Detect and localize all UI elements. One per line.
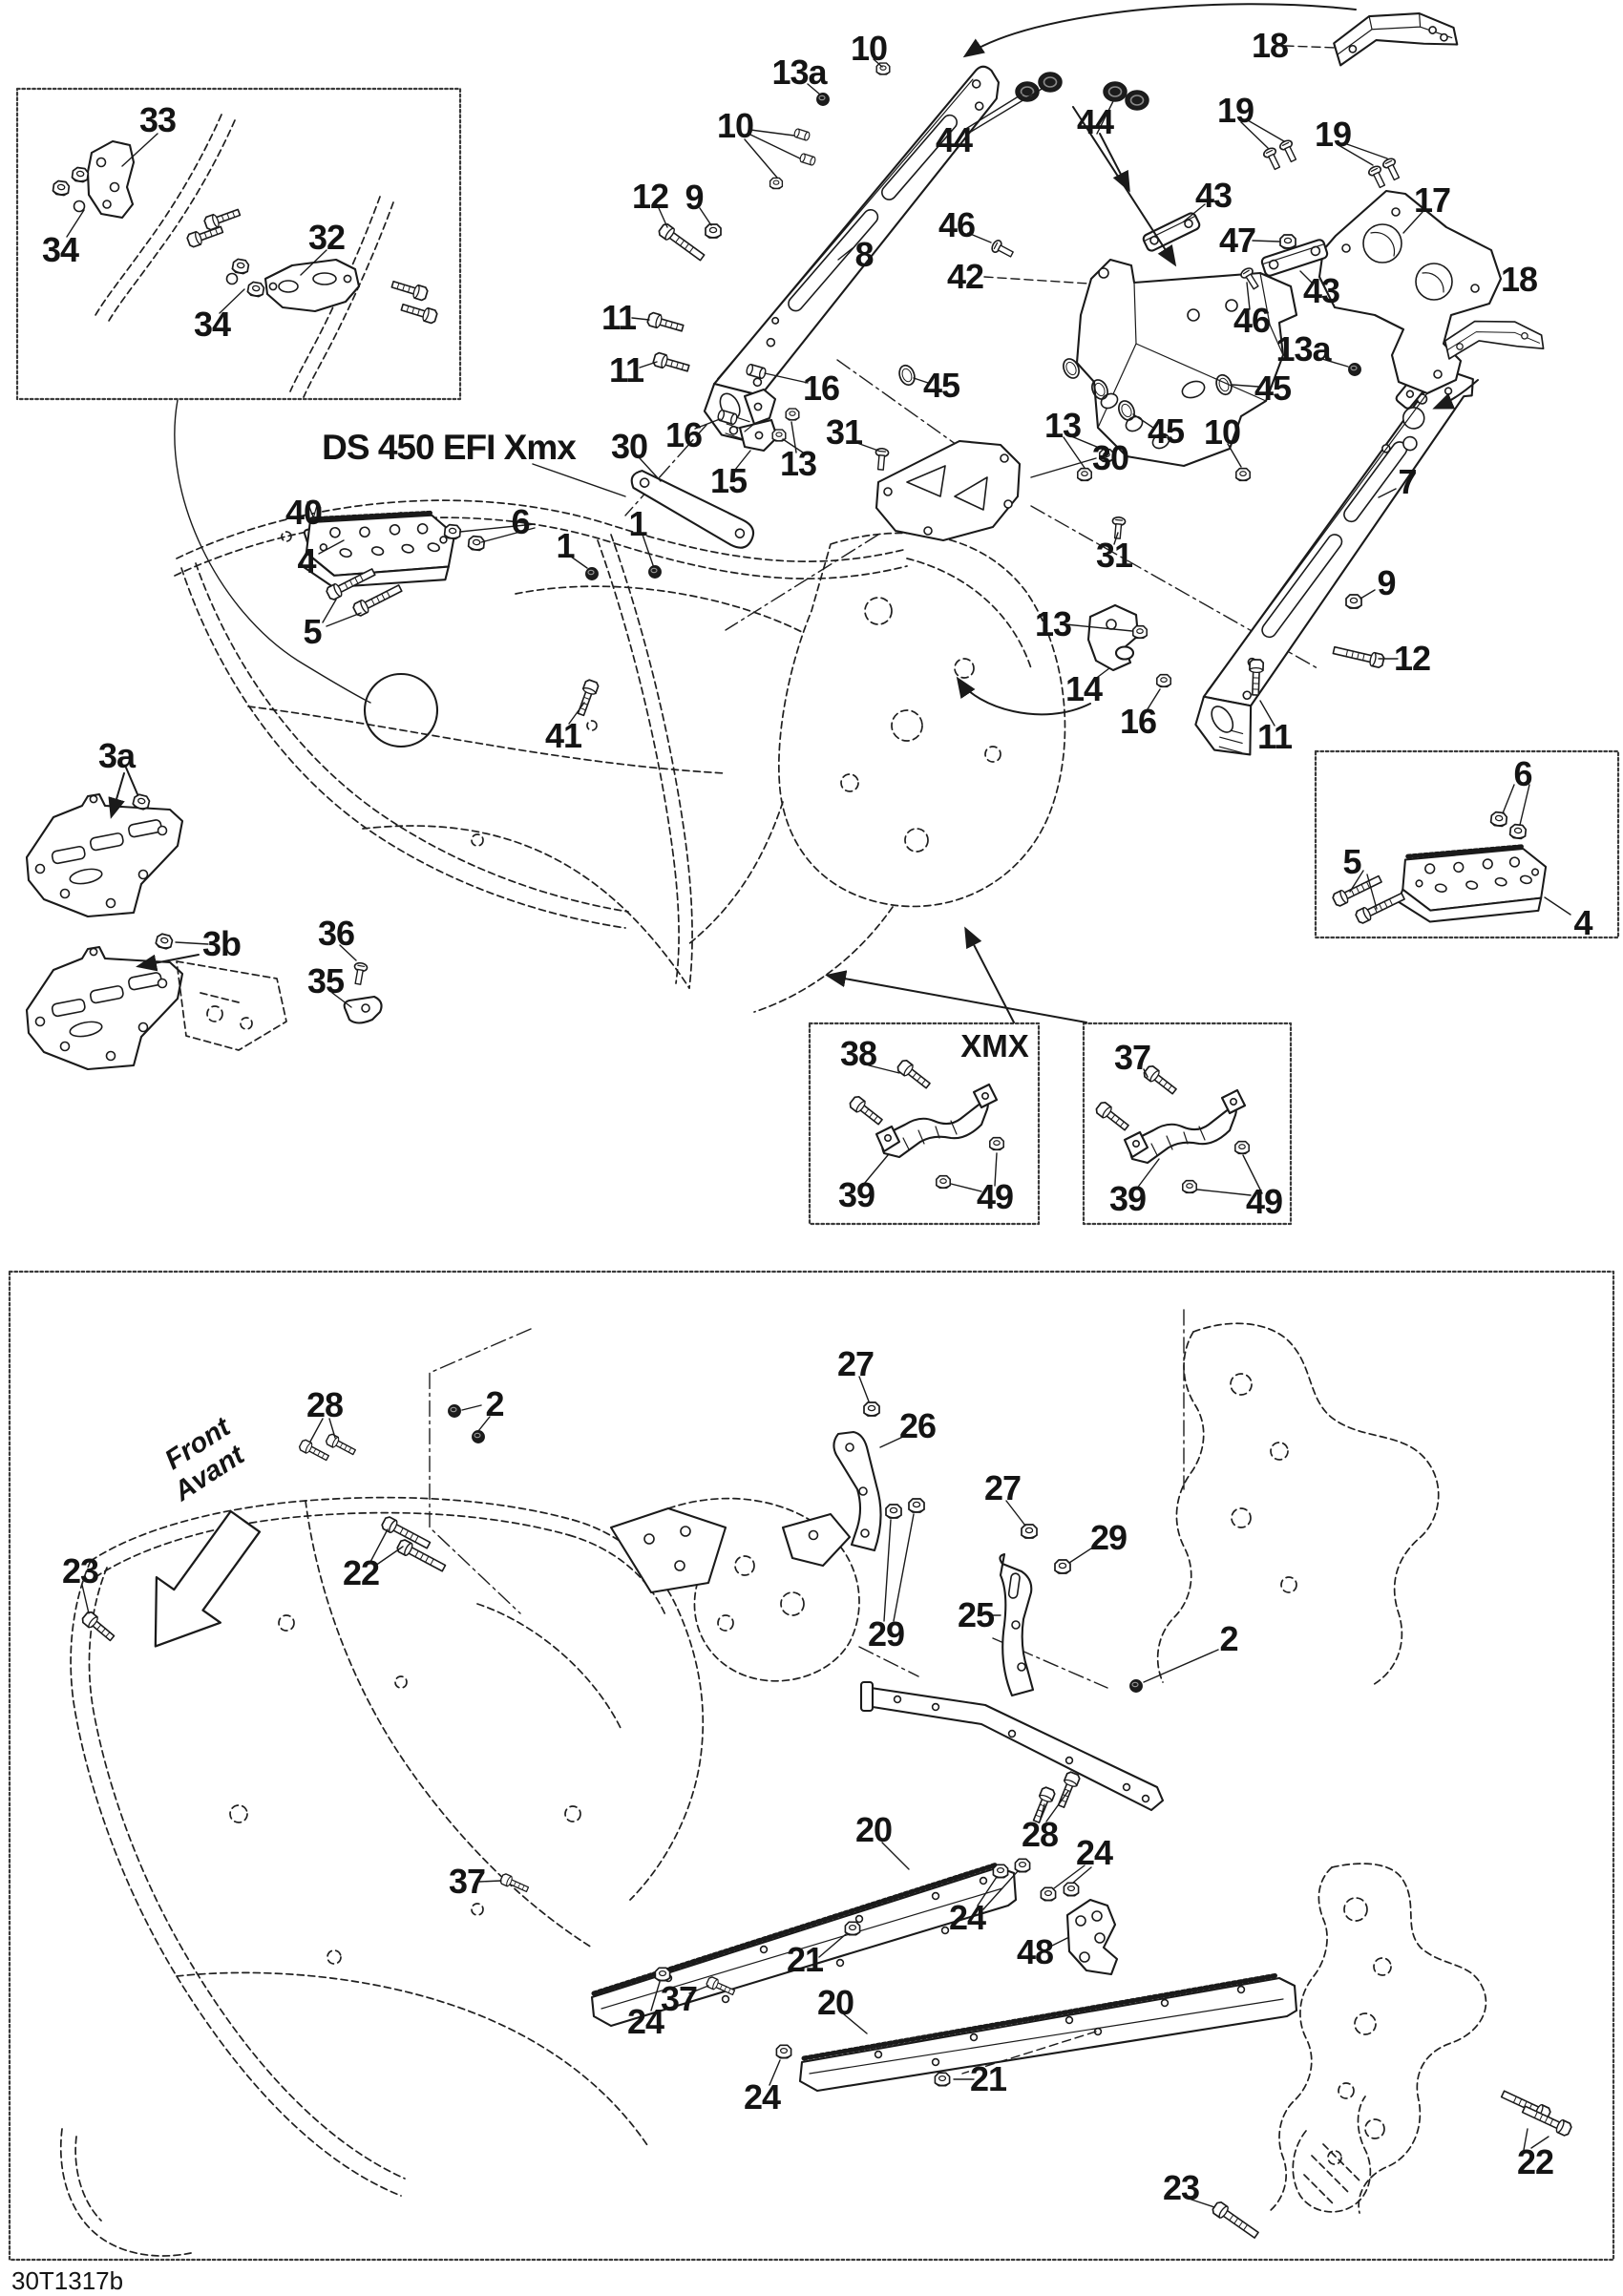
callout-24-85: 24 [627, 2002, 664, 2041]
drawing-number: 30T1317b [11, 2266, 123, 2295]
callout-18-4: 18 [1252, 26, 1288, 65]
callout-45-26: 45 [923, 366, 960, 405]
callout-9-41: 9 [1377, 563, 1395, 602]
part-17-support-plate [1319, 191, 1501, 393]
callout-10-34: 10 [717, 106, 753, 145]
part-30-plate [876, 441, 1020, 540]
xmx-inset-label: XMX [960, 1028, 1029, 1064]
callout-35-53: 35 [307, 961, 345, 1001]
callout-21-81: 21 [787, 1940, 824, 1979]
callout-5-58: 5 [1342, 842, 1361, 881]
callout-6-57: 6 [1513, 754, 1531, 793]
callout-12-11: 12 [632, 177, 668, 216]
callout-14-44: 14 [1065, 669, 1103, 708]
callout-22-90: 22 [1517, 2142, 1553, 2181]
callout-22-75: 22 [343, 1553, 379, 1592]
callout-10-5: 10 [851, 29, 887, 68]
inset-box-brackets [17, 89, 460, 399]
callout-27-66: 27 [837, 1344, 874, 1383]
callout-42-15: 42 [947, 257, 983, 296]
callout-33-0: 33 [139, 100, 176, 139]
callout-47-16: 47 [1219, 221, 1255, 260]
callout-38-60: 38 [840, 1034, 876, 1073]
callout-39-64: 39 [1109, 1179, 1146, 1218]
callout-24-83: 24 [1076, 1833, 1113, 1872]
callout-21-88: 21 [970, 2059, 1007, 2098]
callout-20-86: 20 [817, 1983, 854, 2022]
callout-18-24: 18 [1501, 260, 1537, 299]
callout-32-2: 32 [308, 218, 345, 257]
callout-30-36: 30 [1092, 438, 1128, 477]
part-14-bracket [1088, 605, 1138, 670]
callout-8-20: 8 [854, 235, 873, 274]
callout-23-74: 23 [62, 1551, 98, 1590]
callout-13a-23: 13a [1275, 329, 1332, 369]
callout-41-48: 41 [545, 716, 582, 755]
callout-40-49: 40 [285, 493, 322, 532]
callout-1-47: 1 [628, 504, 647, 543]
handle-insets-content [829, 930, 1262, 1195]
callout-13-32: 13 [780, 444, 816, 483]
callout-39-61: 39 [838, 1175, 875, 1214]
callout-25-72: 25 [958, 1595, 995, 1634]
part-20-rail-lower [800, 1975, 1296, 2091]
footrest-right-group [1332, 785, 1570, 943]
callout-19-10: 19 [1315, 115, 1351, 154]
callout-31-38: 31 [1096, 536, 1133, 575]
callout-1-46: 1 [556, 526, 575, 565]
callout-44-7: 44 [936, 120, 973, 159]
callout-37-78: 37 [661, 1979, 697, 2018]
callout-17-14: 17 [1414, 180, 1450, 220]
callout-28-80: 28 [1022, 1815, 1058, 1854]
callout-48-84: 48 [1017, 1932, 1053, 1971]
callout-29-71: 29 [1090, 1518, 1127, 1557]
callout-16-30: 16 [665, 415, 702, 454]
callout-4-59: 4 [1573, 903, 1592, 942]
callout-5-55: 5 [303, 612, 322, 651]
callout-4-54: 4 [297, 541, 316, 580]
callout-3a-50: 3a [98, 736, 137, 775]
callout-19-9: 19 [1217, 91, 1254, 130]
diagram-texts: DS 450 EFI Xmx XMX Front Avant 30T1317b [11, 428, 1029, 2295]
callout-29-73: 29 [868, 1614, 904, 1654]
callout-24-82: 24 [949, 1898, 986, 1937]
callout-6-56: 6 [511, 502, 529, 541]
callout-13a-6: 13a [771, 53, 828, 92]
callout-27-70: 27 [984, 1468, 1021, 1507]
callout-11-43: 11 [1257, 717, 1293, 756]
callout-15-31: 15 [710, 461, 748, 500]
detail-circle [365, 674, 437, 747]
callout-10-35: 10 [1204, 412, 1240, 452]
callout-13-39: 13 [1035, 604, 1071, 643]
callout-9-12: 9 [685, 178, 703, 217]
callout-31-33: 31 [826, 412, 863, 452]
exploded-parts-diagram: DS 450 EFI Xmx XMX Front Avant 30T1317b … [0, 0, 1623, 2296]
callout-13-37: 13 [1044, 406, 1081, 445]
callout-26-67: 26 [899, 1406, 936, 1445]
callout-2-76: 2 [1219, 1619, 1237, 1658]
callout-24-87: 24 [744, 2077, 781, 2117]
callout-45-27: 45 [1254, 369, 1292, 408]
callout-16-25: 16 [803, 369, 839, 408]
callout-49-65: 49 [1246, 1182, 1282, 1221]
callout-34-1: 34 [42, 230, 79, 269]
callout-7-40: 7 [1398, 462, 1416, 501]
parts-diagram-page: DS 450 EFI Xmx XMX Front Avant 30T1317b … [0, 0, 1623, 2296]
model-label: DS 450 EFI Xmx [322, 428, 577, 467]
callout-11-21: 11 [601, 298, 637, 337]
callout-46-19: 46 [1233, 301, 1270, 340]
callout-2-69: 2 [485, 1384, 503, 1423]
callout-45-28: 45 [1148, 411, 1185, 451]
callout-46-13: 46 [938, 205, 975, 244]
footrest-left-group [296, 485, 535, 626]
callout-37-63: 37 [1114, 1038, 1150, 1077]
callout-numbers: 33343234181013a4444191912946174247434346… [42, 26, 1593, 2207]
callout-3b-51: 3b [202, 924, 241, 963]
callout-37-77: 37 [449, 1862, 485, 1901]
callout-49-62: 49 [977, 1177, 1013, 1216]
part-42-engine-mount [1077, 260, 1296, 466]
lower-view-box [10, 1272, 1613, 2260]
callout-43-18: 43 [1303, 271, 1339, 310]
callout-43-17: 43 [1195, 176, 1232, 215]
callout-36-52: 36 [318, 914, 354, 953]
inset-brackets-content [53, 115, 438, 703]
callout-34-3: 34 [194, 305, 231, 344]
callout-30-29: 30 [611, 427, 647, 466]
callout-20-79: 20 [855, 1810, 892, 1849]
callout-12-42: 12 [1394, 639, 1430, 678]
callout-23-89: 23 [1163, 2168, 1199, 2207]
callout-44-8: 44 [1077, 102, 1114, 141]
callout-11-22: 11 [609, 350, 644, 390]
callout-28-68: 28 [306, 1385, 343, 1424]
callout-16-45: 16 [1120, 702, 1156, 741]
